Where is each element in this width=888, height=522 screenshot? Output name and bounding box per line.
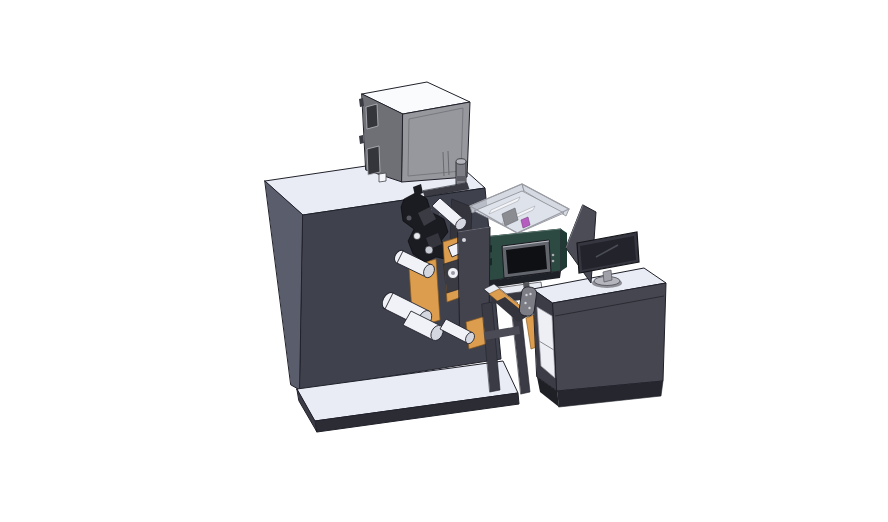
monitor-stand-neck [603, 270, 612, 282]
hmi-button [552, 260, 555, 263]
exhaust-cylinder [456, 159, 466, 186]
sensor-dot [525, 294, 527, 296]
sensor-dot [524, 302, 526, 304]
bolt [407, 216, 412, 221]
machine-left-panel [265, 181, 303, 390]
cabinet-window-lower [367, 146, 380, 175]
guide-wheel [414, 233, 421, 240]
guide-wheel [425, 246, 433, 254]
cad-viewport [0, 0, 888, 522]
roller-hub [451, 271, 455, 275]
hmi-screen [506, 245, 547, 274]
electrical-cabinet [359, 82, 470, 186]
sensor-dot [528, 307, 530, 309]
machine-render [0, 0, 888, 522]
hmi-button [552, 254, 555, 257]
cabinet-window-upper [366, 104, 378, 129]
operator-desk [533, 268, 666, 407]
cabinet-label-plate [379, 173, 386, 182]
plate-knob [462, 238, 466, 242]
hinge [359, 135, 364, 144]
sensor-dot [529, 293, 531, 295]
hmi-box-right [561, 229, 567, 271]
